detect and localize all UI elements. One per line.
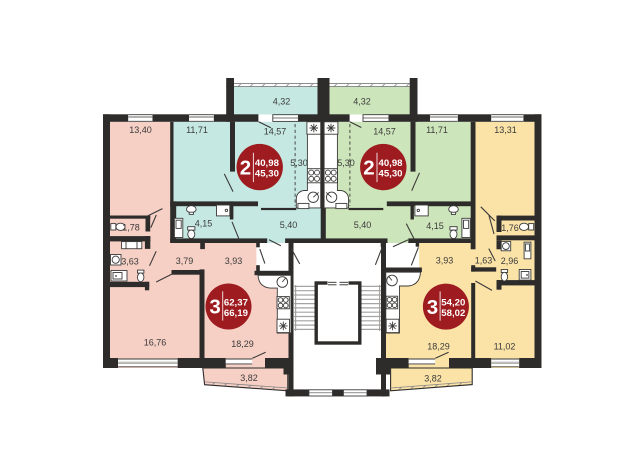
- svg-text:1,78: 1,78: [122, 223, 140, 233]
- svg-text:2,96: 2,96: [501, 256, 519, 266]
- svg-text:58,02: 58,02: [441, 308, 465, 319]
- svg-text:14,57: 14,57: [373, 127, 396, 137]
- svg-text:2: 2: [363, 156, 374, 179]
- svg-text:4,15: 4,15: [195, 219, 213, 229]
- svg-text:4,15: 4,15: [426, 221, 444, 231]
- svg-text:1,76: 1,76: [501, 223, 519, 233]
- svg-text:5,30: 5,30: [290, 158, 308, 168]
- svg-text:13,40: 13,40: [129, 125, 152, 135]
- svg-text:5,30: 5,30: [337, 158, 355, 168]
- svg-text:62,37: 62,37: [224, 297, 248, 308]
- svg-text:11,71: 11,71: [426, 125, 448, 135]
- svg-text:66,19: 66,19: [224, 308, 248, 319]
- svg-text:40,98: 40,98: [378, 158, 403, 169]
- svg-text:5,40: 5,40: [354, 220, 372, 230]
- svg-text:3,82: 3,82: [424, 374, 442, 384]
- svg-text:16,76: 16,76: [144, 338, 167, 348]
- svg-text:18,29: 18,29: [231, 339, 254, 349]
- svg-text:14,57: 14,57: [264, 127, 287, 137]
- svg-text:3,79: 3,79: [176, 256, 194, 266]
- svg-text:3,63: 3,63: [121, 257, 139, 267]
- svg-text:3: 3: [427, 296, 438, 319]
- svg-text:3,93: 3,93: [436, 256, 454, 266]
- svg-text:13,31: 13,31: [494, 125, 517, 135]
- svg-text:11,71: 11,71: [186, 125, 208, 135]
- svg-text:4,32: 4,32: [353, 97, 371, 107]
- svg-text:45,30: 45,30: [378, 169, 402, 180]
- svg-text:3,93: 3,93: [225, 256, 243, 266]
- svg-text:4,32: 4,32: [273, 97, 291, 107]
- svg-text:40,98: 40,98: [255, 158, 280, 169]
- svg-text:3: 3: [209, 296, 220, 319]
- svg-text:45,30: 45,30: [255, 169, 279, 180]
- svg-text:11,02: 11,02: [494, 342, 516, 352]
- svg-text:1,63: 1,63: [475, 256, 493, 266]
- svg-text:5,40: 5,40: [280, 220, 298, 230]
- svg-text:2: 2: [240, 156, 251, 179]
- svg-text:18,29: 18,29: [427, 342, 450, 352]
- svg-text:3,82: 3,82: [240, 373, 258, 383]
- svg-text:54,20: 54,20: [441, 298, 465, 309]
